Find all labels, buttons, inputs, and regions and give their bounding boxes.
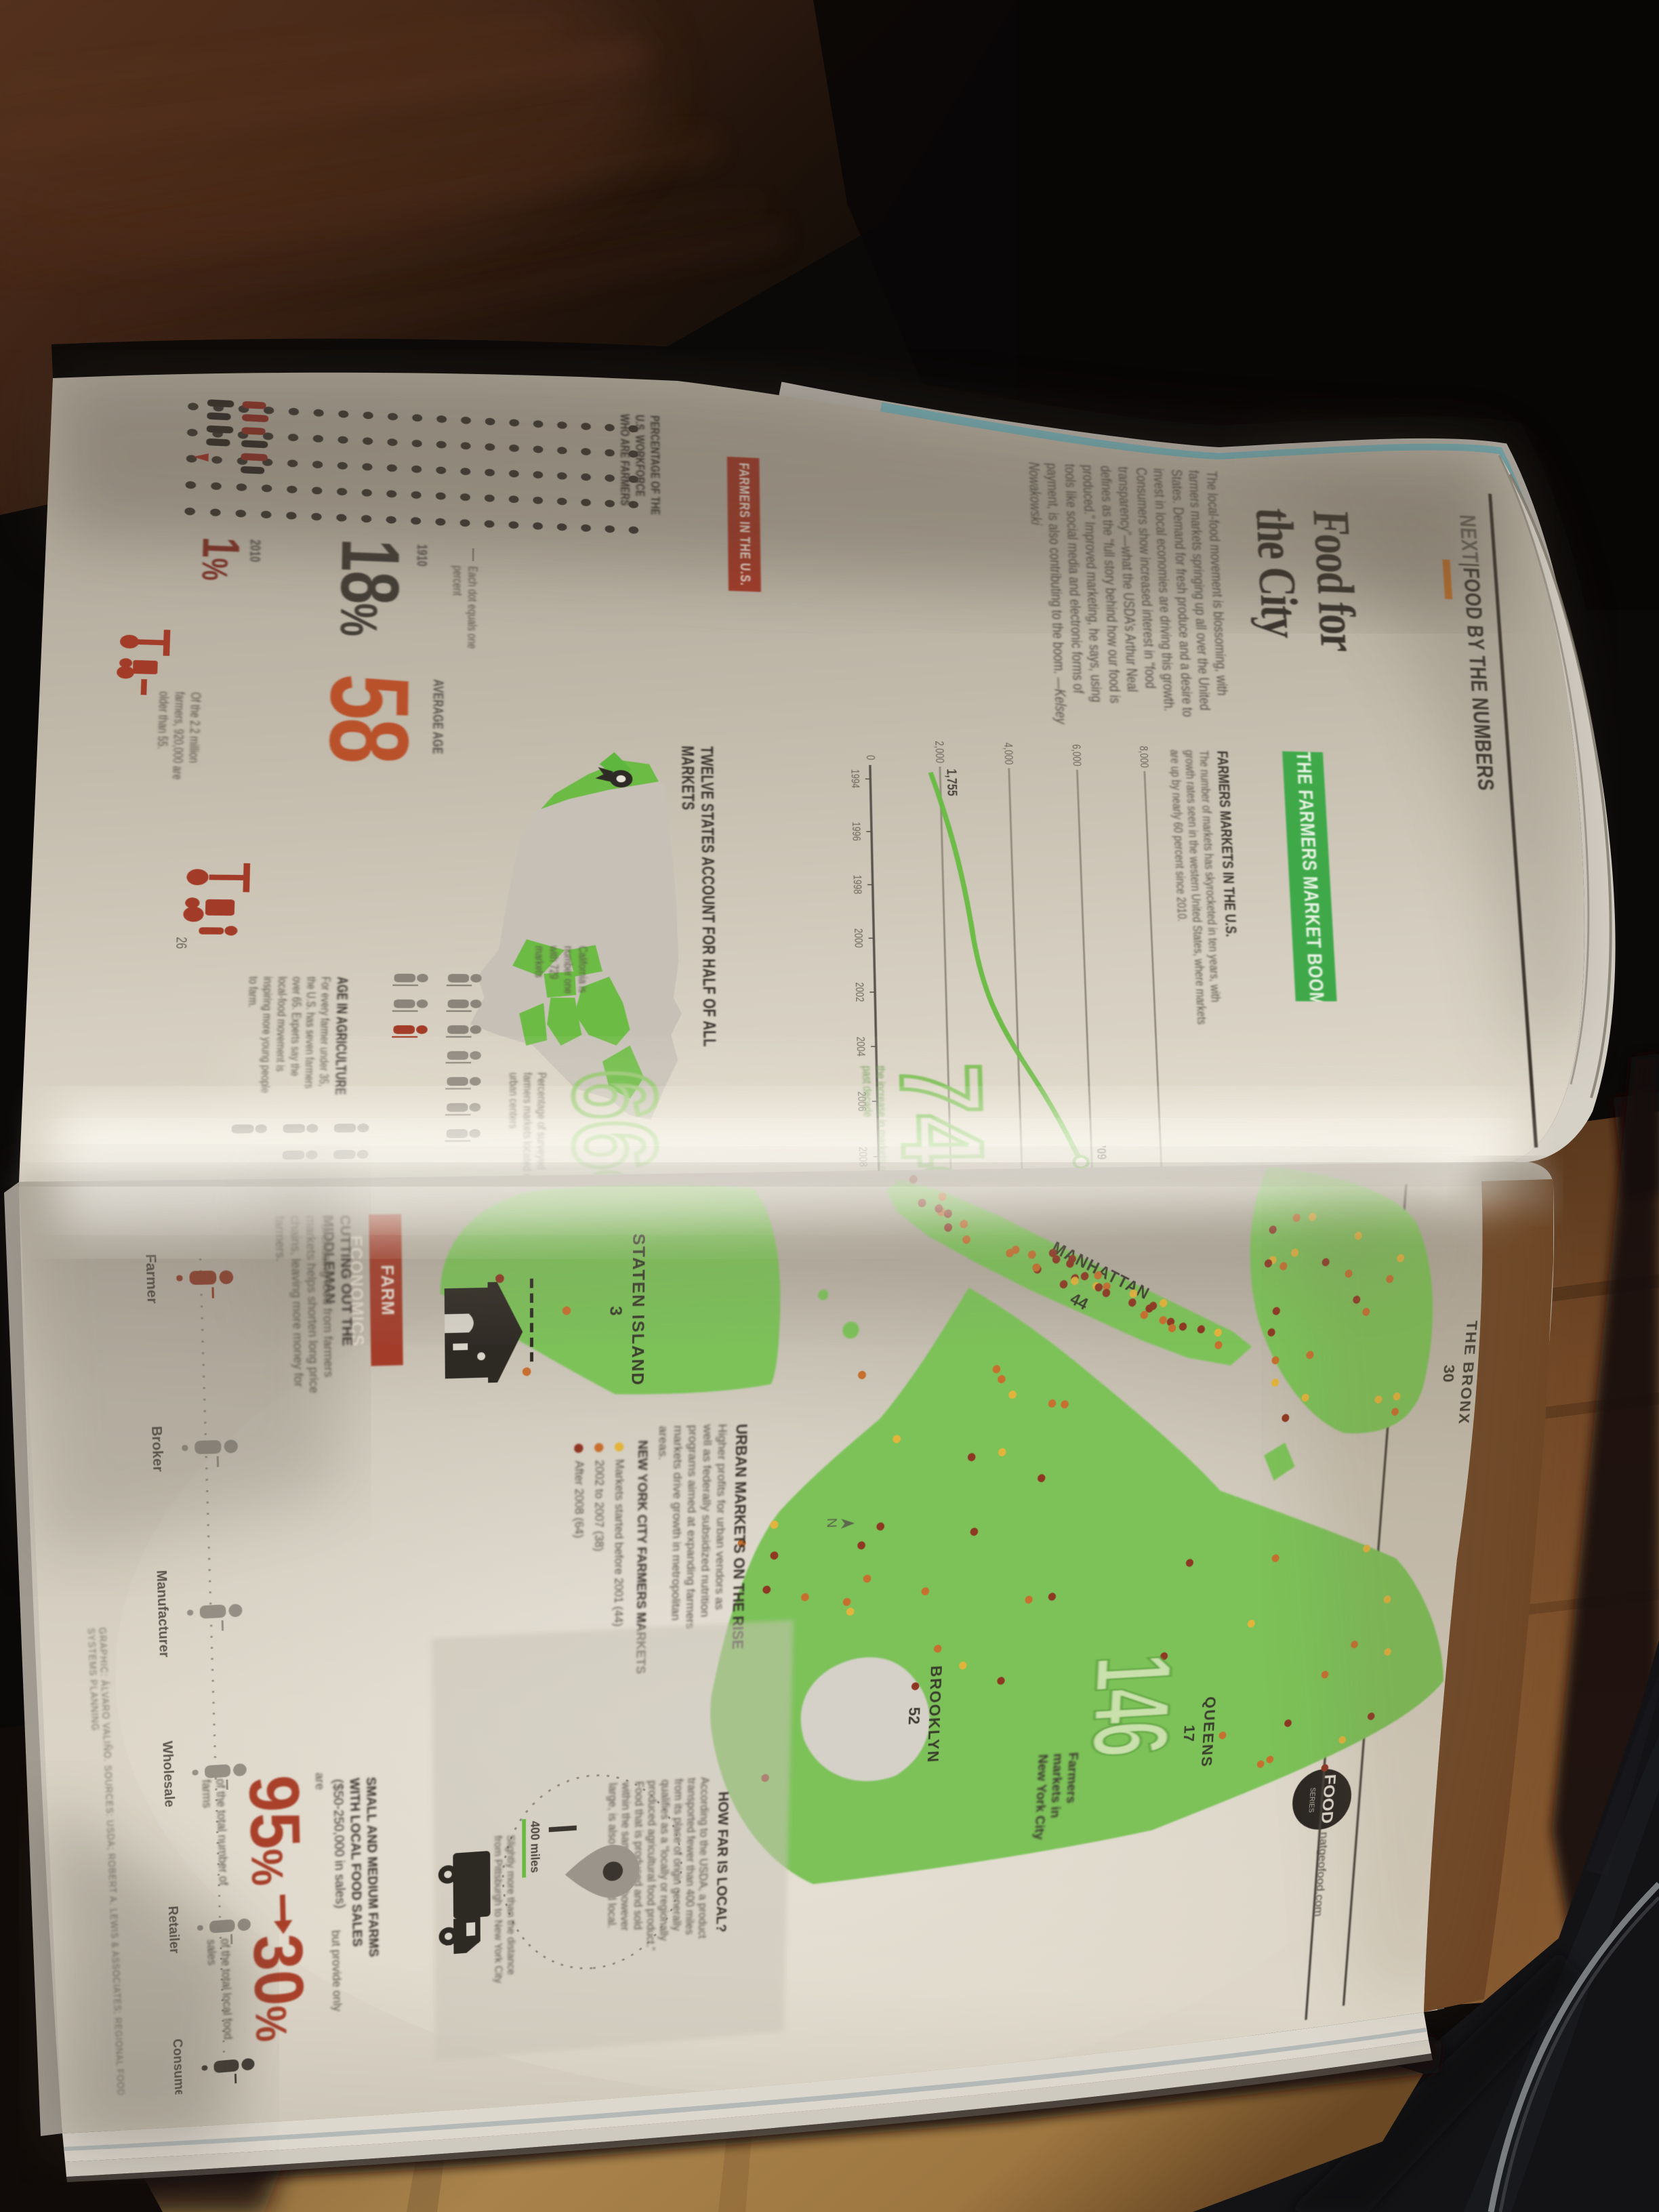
svg-text:26: 26 bbox=[173, 937, 190, 949]
svg-text:2004: 2004 bbox=[855, 1037, 867, 1057]
svg-text:1994: 1994 bbox=[849, 769, 861, 789]
svg-text:2,000: 2,000 bbox=[933, 741, 946, 763]
svg-text:STATEN ISLAND: STATEN ISLAND bbox=[628, 1233, 648, 1387]
svg-text:Farmer: Farmer bbox=[142, 1254, 161, 1304]
svg-text:400 miles: 400 miles bbox=[528, 1820, 541, 1873]
svg-text:3: 3 bbox=[606, 1306, 624, 1316]
svg-text:4,000: 4,000 bbox=[1001, 743, 1014, 765]
svg-text:Manufacturer: Manufacturer bbox=[153, 1570, 172, 1658]
svg-text:Consumer: Consumer bbox=[170, 2039, 188, 2100]
svg-text:8,000: 8,000 bbox=[1136, 745, 1149, 768]
svg-text:2002: 2002 bbox=[853, 982, 866, 1002]
svg-text:52: 52 bbox=[905, 1706, 922, 1725]
svg-text:2000: 2000 bbox=[853, 928, 865, 948]
svg-text:Broker: Broker bbox=[148, 1426, 166, 1472]
svg-text:30: 30 bbox=[1439, 1364, 1457, 1382]
svg-text:N: N bbox=[824, 1517, 840, 1528]
svg-text:1996: 1996 bbox=[850, 822, 862, 842]
svg-text:Retailer: Retailer bbox=[165, 1906, 182, 1954]
svg-text:0: 0 bbox=[863, 755, 876, 760]
svg-text:1998: 1998 bbox=[851, 875, 864, 895]
svg-text:Wholesale: Wholesale bbox=[159, 1740, 178, 1807]
svg-text:1,755: 1,755 bbox=[944, 769, 960, 796]
svg-text:6,000: 6,000 bbox=[1069, 744, 1082, 766]
svg-text:’09: ’09 bbox=[1094, 1145, 1109, 1160]
